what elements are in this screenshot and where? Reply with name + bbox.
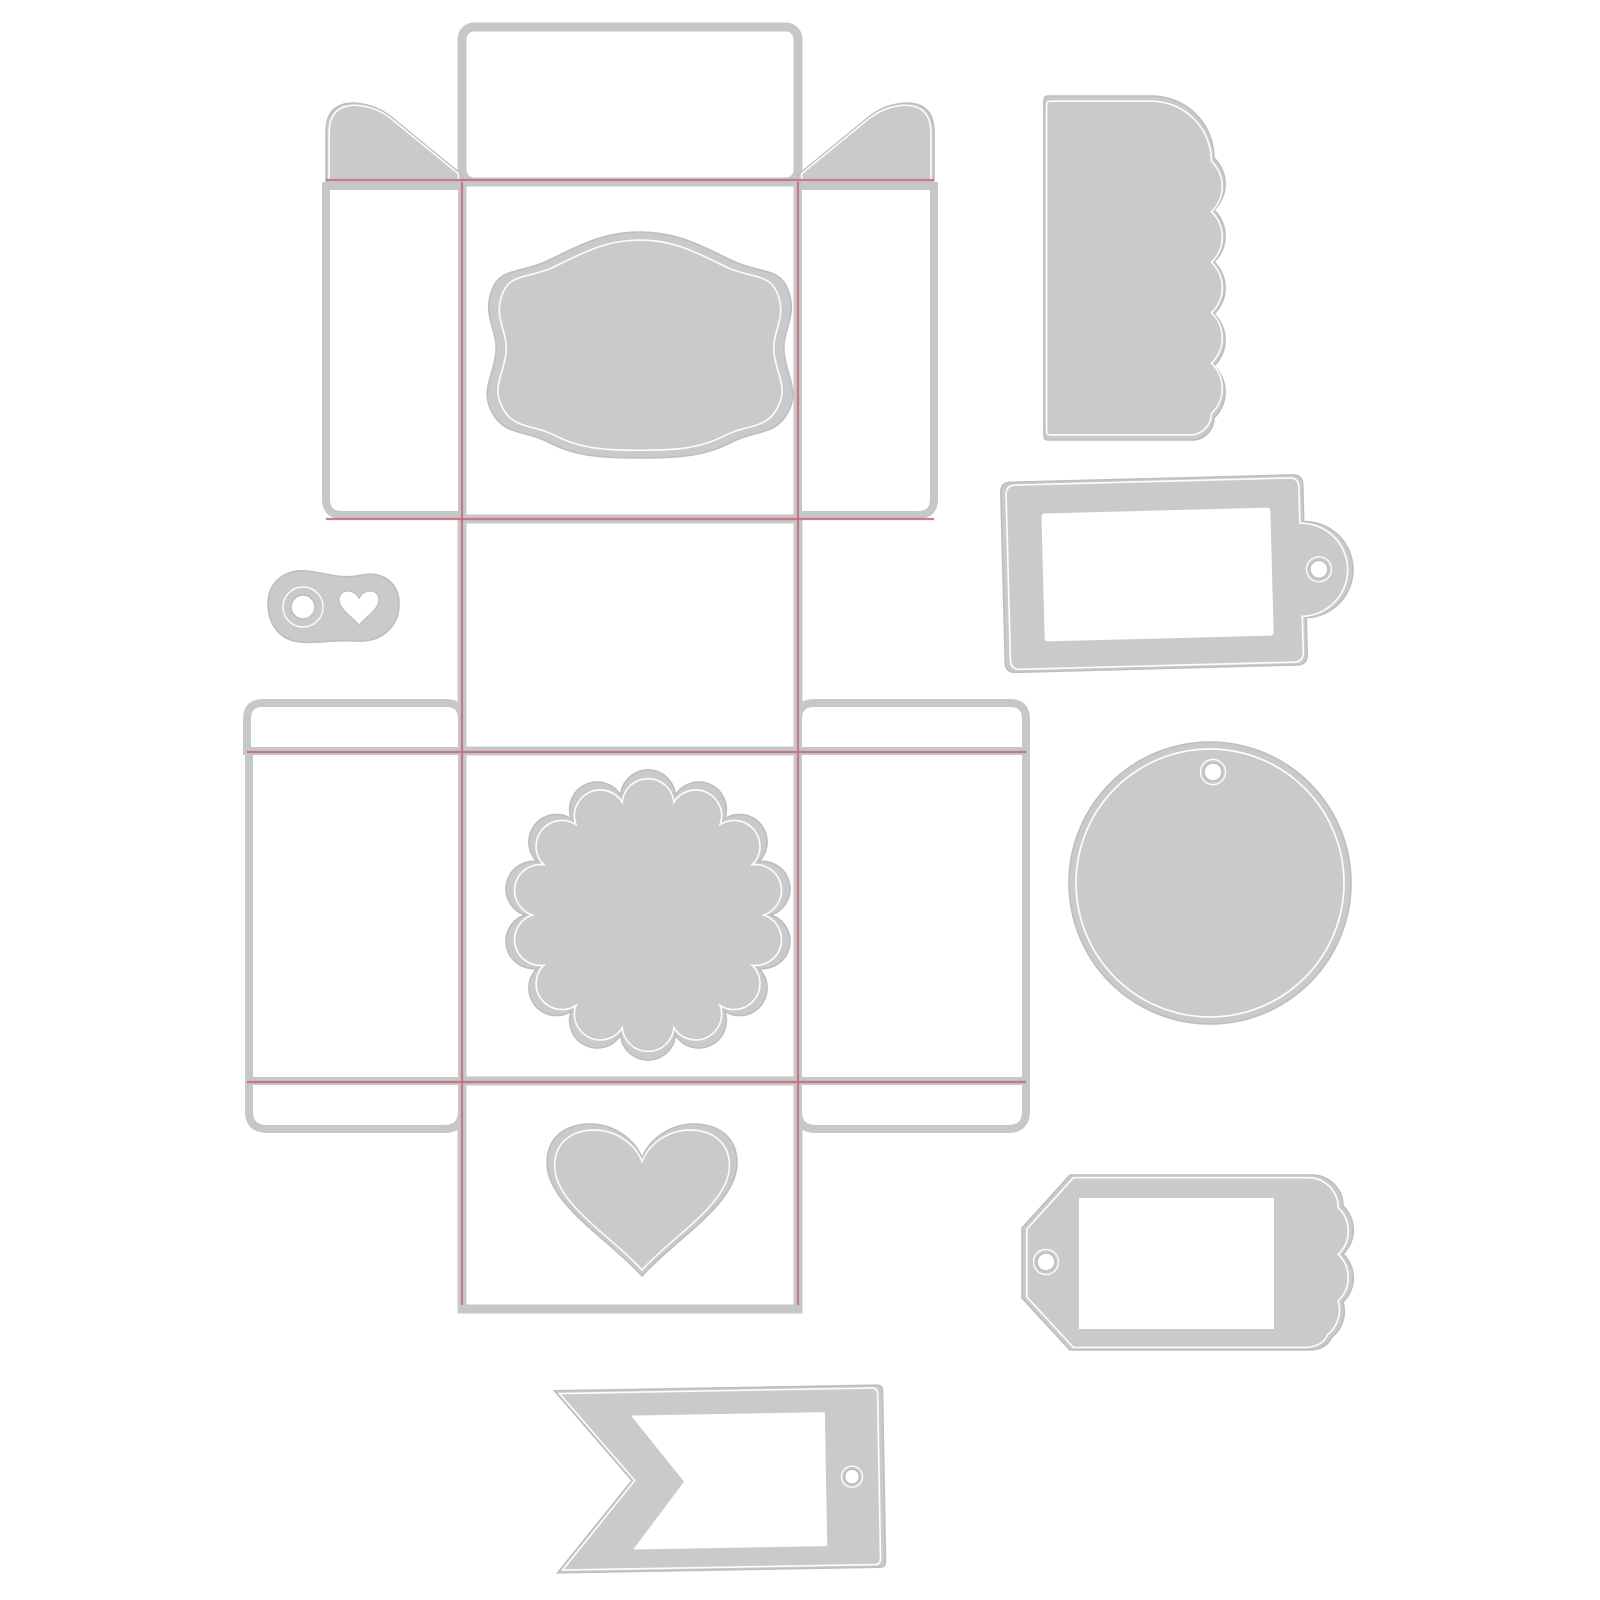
- side-flap-left-row2: [249, 751, 462, 1081]
- side-flap-left-row1: [326, 186, 462, 515]
- luggage-tag-window: [1079, 1198, 1274, 1329]
- die-template-canvas: [0, 0, 1600, 1600]
- die-template-sheet: [0, 0, 1600, 1600]
- trim-blob-shape: [268, 571, 399, 643]
- circle-tag-hole: [1204, 763, 1222, 781]
- corner-flap-left: [326, 103, 462, 182]
- frame-label-tag-die: [1001, 473, 1356, 672]
- box-template: [247, 27, 1026, 1309]
- glue-tab-right-top: [798, 703, 1026, 751]
- flag-banner-die: [554, 1385, 885, 1573]
- ornate-label-die: [487, 232, 793, 458]
- glue-tab-left-bottom: [249, 1081, 462, 1129]
- glue-tab-right-bottom: [798, 1081, 1026, 1129]
- box-spine-panel: [462, 519, 798, 751]
- eyelet-trim-die: [268, 571, 399, 643]
- frame-tag-hole: [1310, 560, 1328, 578]
- glue-tab-left-top: [247, 703, 462, 751]
- frame-tag-window: [1041, 508, 1273, 642]
- flag-banner-hole: [844, 1469, 859, 1484]
- scalloped-edge-tag-die: [1044, 96, 1225, 440]
- eyelet-hole: [295, 599, 311, 615]
- side-flap-right-row1: [798, 186, 934, 515]
- circle-tag-die: [1069, 742, 1351, 1024]
- scalloped-edge-tag-shape: [1044, 96, 1225, 440]
- ornate-label-shape: [487, 232, 793, 458]
- luggage-tag-hole: [1037, 1253, 1055, 1271]
- box-top-flap-panel: [462, 27, 798, 182]
- side-flap-right-row2: [798, 751, 1026, 1081]
- corner-flap-right: [798, 103, 934, 182]
- luggage-tag-die: [1022, 1175, 1353, 1350]
